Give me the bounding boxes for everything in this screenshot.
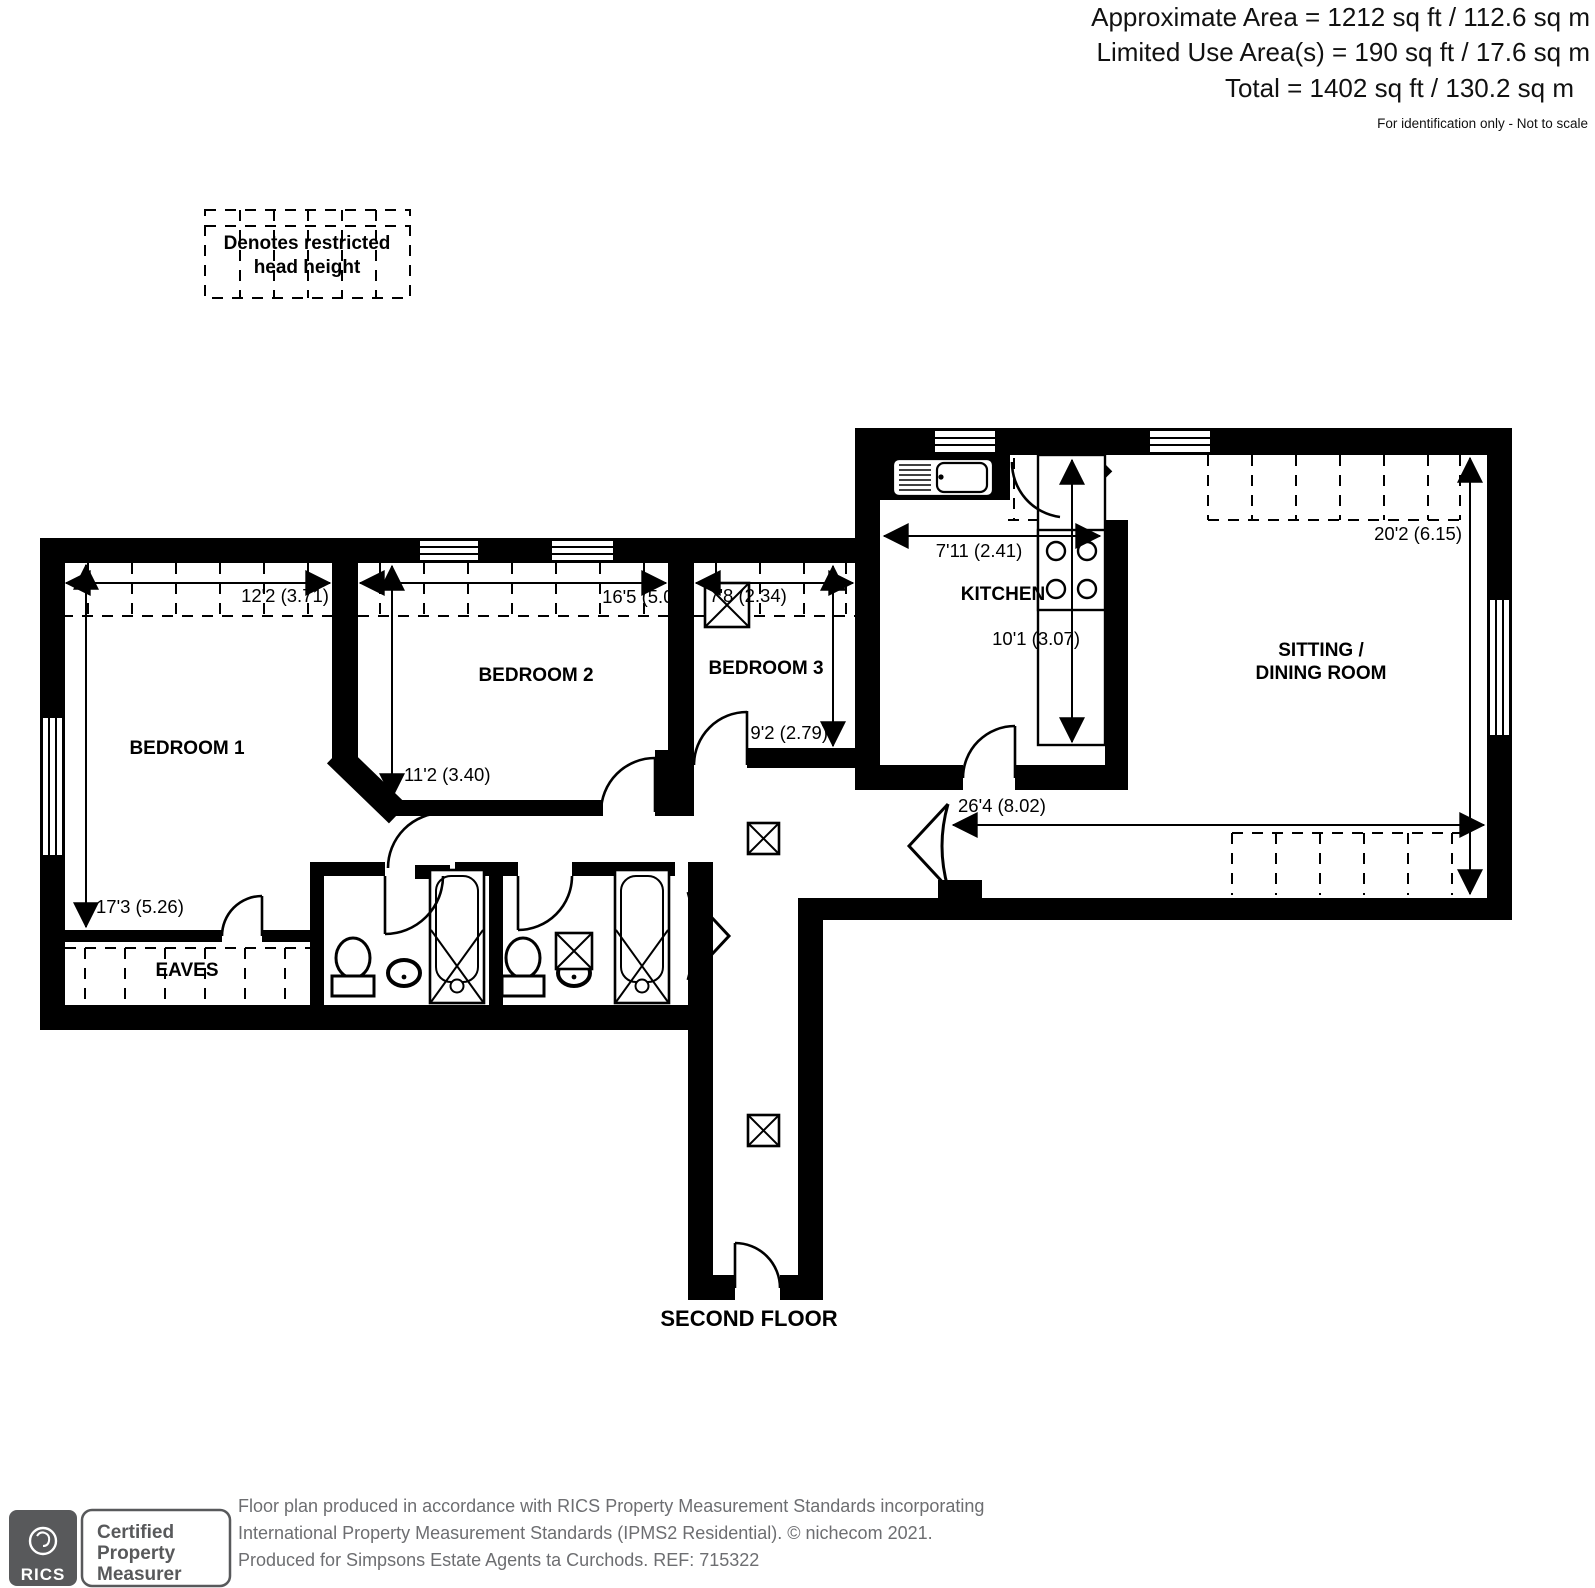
dim-label: 26'4 (8.02) — [958, 795, 1046, 816]
floor-title: SECOND FLOOR — [660, 1306, 837, 1331]
stair-door-icon — [735, 1243, 780, 1288]
badge-line2: Property — [97, 1543, 176, 1564]
dim-sitting-depth: 20'2 (6.15) — [1374, 458, 1470, 894]
bathroom2-door-icon — [518, 876, 572, 930]
bedroom1-label: BEDROOM 1 — [129, 738, 245, 759]
sitting-dining-label-line2: DINING ROOM — [1256, 663, 1387, 684]
dim-label: 7'11 (2.41) — [936, 540, 1023, 561]
rics-logo-text: RICS — [21, 1565, 66, 1584]
eaves-label: EAVES — [155, 960, 218, 981]
dim-label: 12'2 (3.71) — [241, 585, 329, 606]
dim-label: 9'2 (2.79) — [750, 722, 828, 743]
kitchen-label: KITCHEN — [961, 584, 1045, 605]
disclaimer-text: For identification only - Not to scale — [1377, 116, 1588, 131]
badge-line3: Measurer — [97, 1564, 182, 1585]
dim-bedroom1-width: 12'2 (3.71) — [66, 583, 330, 606]
approximate-area-text: Approximate Area = 1212 sq ft / 112.6 sq… — [1091, 2, 1590, 32]
bath-icon — [615, 870, 669, 1003]
rooflight-icon — [748, 823, 779, 854]
kitchen-door-icon — [963, 726, 1015, 778]
dim-label: 16'5 (5.00) — [602, 586, 690, 607]
rooflight-icon — [748, 1115, 779, 1146]
dimensions: 12'2 (3.71) 17'3 (5.26) 16'5 (5.00) 11'2… — [66, 458, 1484, 927]
bedroom2-door-icon — [601, 758, 655, 812]
window-icon — [552, 541, 613, 560]
eaves-access-door-icon — [222, 896, 262, 936]
sitting-double-door-icon — [909, 804, 948, 888]
dim-label: 7'8 (2.34) — [709, 585, 787, 606]
footer: RICS Certified Property Measurer Floor p… — [9, 1496, 984, 1586]
dim-label: 10'1 (3.07) — [992, 628, 1080, 649]
window-icon — [43, 718, 62, 855]
legend-line2: head height — [254, 257, 361, 278]
bath-icon — [430, 870, 484, 1003]
rics-logo: RICS — [9, 1510, 77, 1586]
toilet-icon — [502, 938, 544, 996]
dim-bedroom2-width: 16'5 (5.00) — [360, 583, 690, 607]
dim-bedroom3-width: 7'8 (2.34) — [696, 583, 853, 606]
window-icon — [420, 541, 478, 560]
rooflight-icon — [556, 933, 592, 969]
dim-sitting-width: 26'4 (8.02) — [953, 795, 1484, 825]
window-icon — [1150, 431, 1210, 452]
footer-disclaimer: Floor plan produced in accordance with R… — [238, 1496, 984, 1570]
bedroom2-label: BEDROOM 2 — [478, 665, 593, 686]
footer-line2: International Property Measurement Stand… — [238, 1523, 933, 1543]
legend-line1: Denotes restricted — [224, 233, 391, 254]
bedroom3-door-icon — [694, 711, 747, 765]
bedroom3-label: BEDROOM 3 — [708, 658, 823, 679]
footer-line3: Produced for Simpsons Estate Agents ta C… — [238, 1550, 759, 1570]
window-icon — [1490, 600, 1509, 735]
dim-bedroom2-depth: 11'2 (3.40) — [392, 566, 491, 798]
dim-label: 11'2 (3.40) — [404, 764, 491, 785]
floor-plan-canvas: Approximate Area = 1212 sq ft / 112.6 sq… — [0, 0, 1595, 1588]
kitchen-sink-icon — [878, 455, 1010, 500]
bedroom1-door-icon — [388, 813, 443, 868]
dim-label: 17'3 (5.26) — [96, 896, 184, 917]
badge-line1: Certified — [97, 1522, 174, 1543]
total-area-text: Total = 1402 sq ft / 130.2 sq m — [1225, 73, 1574, 103]
dim-label: 20'2 (6.15) — [1374, 523, 1462, 544]
restricted-head-height-legend: Denotes restricted head height — [205, 210, 410, 298]
window-icon — [935, 431, 995, 452]
limited-use-area-text: Limited Use Area(s) = 190 sq ft / 17.6 s… — [1096, 37, 1590, 67]
floorplan-page: Approximate Area = 1212 sq ft / 112.6 sq… — [0, 0, 1595, 1588]
walls — [40, 428, 1512, 1300]
footer-line1: Floor plan produced in accordance with R… — [238, 1496, 984, 1516]
basin-icon — [388, 960, 420, 986]
sitting-dining-label-line1: SITTING / — [1278, 640, 1364, 661]
area-summary: Approximate Area = 1212 sq ft / 112.6 sq… — [1091, 2, 1590, 131]
toilet-icon — [332, 938, 374, 996]
certified-property-measurer-badge: Certified Property Measurer — [82, 1510, 230, 1586]
